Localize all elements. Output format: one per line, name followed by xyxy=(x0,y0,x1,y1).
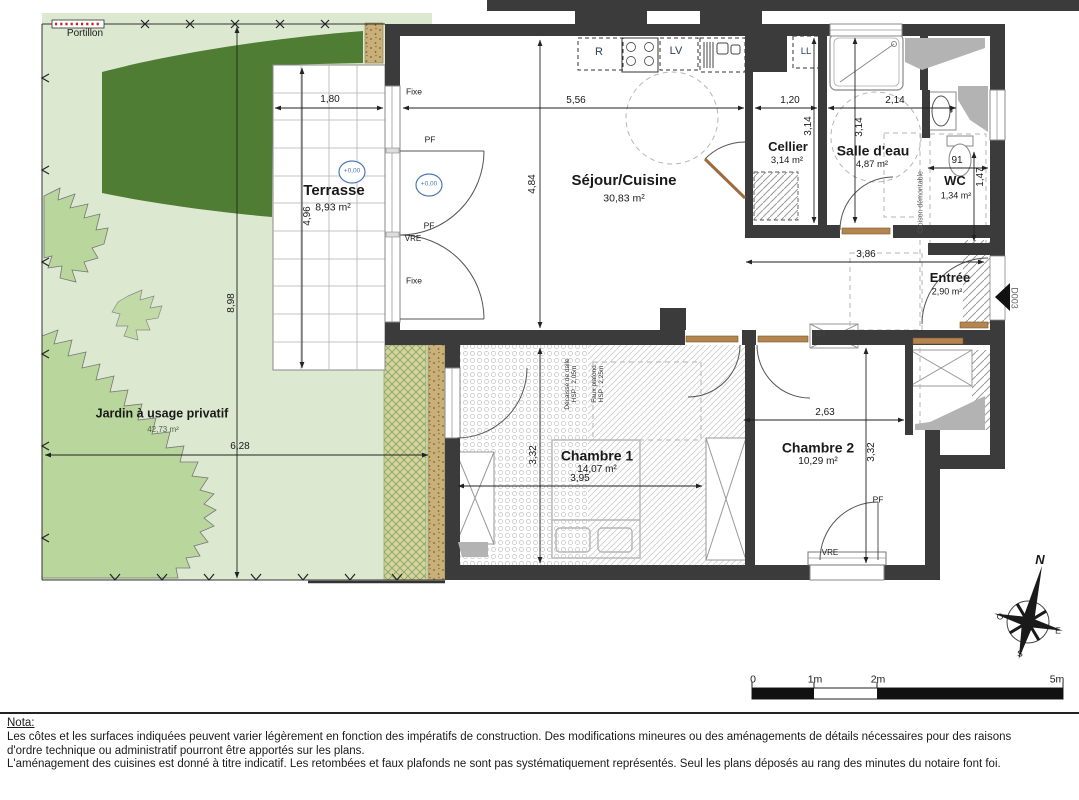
dim-garden-height: 8,98 xyxy=(227,293,238,312)
entree-name: Entrée xyxy=(930,271,970,285)
dim-wc-height: 1,47 xyxy=(976,167,987,186)
dim-cellier-width: 1,20 xyxy=(780,96,799,107)
fixe-label-bottom: Fixe xyxy=(406,277,422,286)
dim-chambre1-width: 3,95 xyxy=(570,474,589,485)
dim-wc-width: 91 xyxy=(951,156,962,167)
nota-line-3: L'aménagement des cuisines est donné à t… xyxy=(0,758,1079,772)
scale-1m-label: 1m xyxy=(808,674,823,685)
dim-salle-eau-width: 2,14 xyxy=(885,96,904,107)
dim-sejour-height: 4,84 xyxy=(528,174,539,193)
cellier-storage xyxy=(754,172,798,220)
level-value-terrasse: +0,00 xyxy=(344,169,360,176)
salle-eau-north-window xyxy=(830,24,902,36)
shower xyxy=(830,34,903,90)
cloison-demontable-label: Cloison démontable xyxy=(917,171,924,233)
nota-title: Nota: xyxy=(0,717,1079,731)
wc-area: 1,34 m² xyxy=(941,191,972,200)
floor-plan-drawing xyxy=(0,0,1079,712)
pf-label-3: PF xyxy=(873,496,884,505)
vre-label-1: VRE xyxy=(405,235,421,243)
nota-line-2: d'ordre technique ou administratif pourr… xyxy=(0,745,1079,759)
sejour-name: Séjour/Cuisine xyxy=(571,173,676,189)
dim-terrasse-width: 1,80 xyxy=(320,95,339,106)
floor-plan-page: Portillon Jardin à usage privatif 42,73 … xyxy=(0,0,1079,800)
sejour-area: 30,83 m² xyxy=(603,193,644,204)
dim-sejour-width: 5,56 xyxy=(566,96,585,107)
garden-label: Jardin à usage privatif xyxy=(96,407,229,420)
salle-eau-name: Salle d'eau xyxy=(837,144,910,159)
nota-block: Nota: Les côtes et les surfaces indiquée… xyxy=(0,712,1079,772)
closet-chambre1 xyxy=(456,452,494,544)
vre-label-2: VRE xyxy=(822,549,838,557)
compass-west-label: O xyxy=(997,613,1004,622)
gt-label: GT xyxy=(815,330,826,338)
pf-label-2: PF xyxy=(424,222,435,231)
pf-label-1: PF xyxy=(425,136,436,145)
compass-north-label: N xyxy=(1035,553,1044,567)
terrasse-tiles xyxy=(273,65,385,370)
dim-hall-width: 3,86 xyxy=(856,250,875,261)
dim-chambre2-height: 3,32 xyxy=(867,442,878,461)
fridge-label: R xyxy=(595,47,603,59)
garden-area: 42,73 m² xyxy=(147,426,179,434)
wc-name: WC xyxy=(944,174,966,188)
chambre2-name: Chambre 2 xyxy=(782,441,854,456)
salle-eau-area: 4,87 m² xyxy=(856,160,888,170)
dim-chambre1-height: 3,32 xyxy=(529,445,540,464)
closet-between-rooms xyxy=(706,438,746,560)
dim-chambre2-width: 2,63 xyxy=(815,408,834,419)
decaisse-note-line2: HSP : 2,05m xyxy=(572,358,579,409)
entree-door-opening xyxy=(990,256,1005,320)
decaisse-note: Décaissé de dalle HSP : 2,05m xyxy=(565,358,579,409)
dishwasher-label: LV xyxy=(670,46,683,58)
dim-garden-width: 6,28 xyxy=(230,442,249,453)
sejour-west-window xyxy=(385,86,400,322)
terrasse-area: 8,93 m² xyxy=(315,202,351,213)
chambre1-west-window xyxy=(445,368,460,438)
terrasse-name: Terrasse xyxy=(303,183,364,199)
chambre2-area: 10,29 m² xyxy=(798,457,837,468)
cellier-area: 3,14 m² xyxy=(771,156,803,166)
closet-entree xyxy=(910,350,972,386)
wc-east-window xyxy=(990,90,1005,140)
scale-0-label: 0 xyxy=(750,674,756,685)
scale-2m-label: 2m xyxy=(871,674,886,685)
fixe-label-top: Fixe xyxy=(406,88,422,97)
chambre1-name: Chambre 1 xyxy=(561,449,633,464)
planting-strip xyxy=(428,343,445,580)
entree-area: 2,90 m² xyxy=(932,287,963,296)
door-code-label: D003 xyxy=(1009,287,1018,309)
faux-plafond-note: Faux plafond HSP : 2,25m xyxy=(592,365,606,403)
faux-plafond-note-line2: HSP : 2,25m xyxy=(599,365,606,403)
scale-bar xyxy=(752,682,1063,699)
portillon-label: Portillon xyxy=(67,29,103,40)
planting-strip xyxy=(365,23,383,63)
compass-east-label: E xyxy=(1055,627,1061,636)
planting-strip xyxy=(384,345,426,580)
dim-salle-eau-height: 3,14 xyxy=(855,117,866,136)
scale-5m-label: 5m xyxy=(1050,674,1065,685)
level-value-sejour: +0,00 xyxy=(421,182,437,189)
nota-line-1: Les côtes et les surfaces indiquées peuv… xyxy=(0,731,1079,745)
dim-terrasse-height: 4,96 xyxy=(303,206,314,225)
washer-label: LL xyxy=(801,47,812,57)
dim-cellier-height: 3,14 xyxy=(804,116,815,135)
washbasin xyxy=(926,92,956,130)
cellier-name: Cellier xyxy=(768,140,808,154)
compass-south-label: S xyxy=(1017,650,1023,659)
